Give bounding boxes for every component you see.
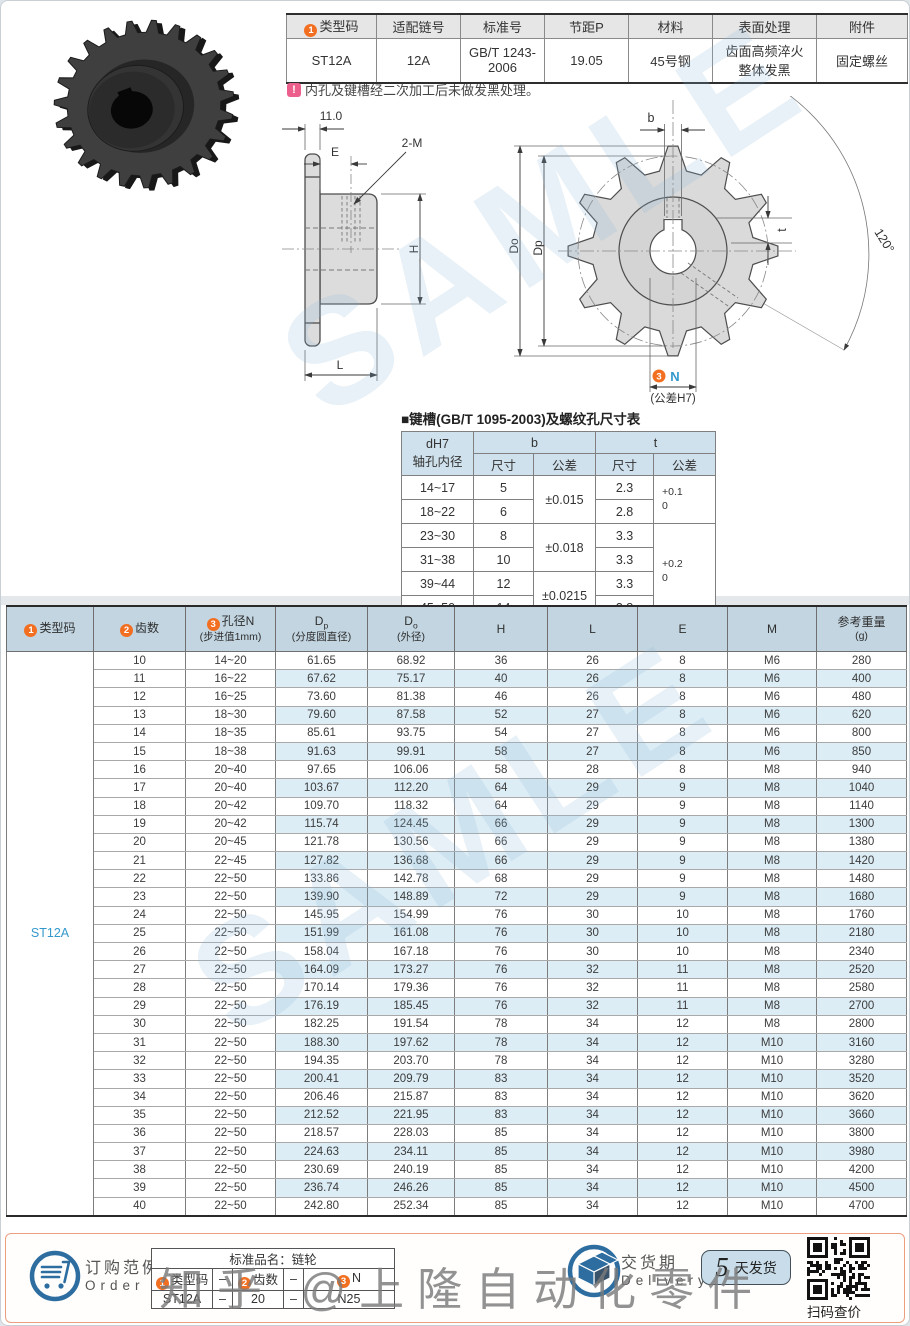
bore-range-cell: 22~50	[186, 906, 276, 924]
do-cell: 81.38	[368, 688, 455, 706]
teeth-cell: 31	[94, 1033, 186, 1051]
bore-range-cell: 22~50	[186, 1179, 276, 1197]
header-bore: 3孔径N(步进值1mm)	[186, 606, 276, 652]
bore-range-cell: 20~40	[186, 761, 276, 779]
do-cell: 130.56	[368, 833, 455, 851]
table-row: 3422~50206.46215.87833412M103620	[7, 1088, 907, 1106]
bore-range-cell: 22~50	[186, 1088, 276, 1106]
l-cell: 26	[548, 652, 638, 670]
table-row: 3922~50236.74246.26853412M104500	[7, 1179, 907, 1197]
do-cell: 99.91	[368, 742, 455, 760]
table-row: 3822~50230.69240.19853412M104200	[7, 1161, 907, 1179]
table-row: 3722~50224.63234.11853412M103980	[7, 1143, 907, 1161]
dp-cell: 67.62	[276, 670, 368, 688]
keyway-header-t: t	[596, 432, 716, 454]
teeth-cell: 15	[94, 742, 186, 760]
l-cell: 34	[548, 1124, 638, 1142]
weight-cell: 2340	[817, 943, 907, 961]
teeth-cell: 21	[94, 852, 186, 870]
m-cell: M6	[728, 670, 817, 688]
spec-header-chain: 适配链号	[377, 14, 461, 38]
bore-range-cell: 22~50	[186, 924, 276, 942]
spec-table-wrap: 1类型码 适配链号 标准号 节距P 材料 表面处理 附件 ST12A 12A G…	[286, 13, 908, 84]
teeth-cell: 25	[94, 924, 186, 942]
m-cell: M10	[728, 1179, 817, 1197]
dp-cell: 85.61	[276, 724, 368, 742]
weight-cell: 2520	[817, 961, 907, 979]
spec-value-type: ST12A	[287, 38, 377, 83]
spec-header-standard: 标准号	[461, 14, 545, 38]
h-cell: 76	[455, 924, 548, 942]
tooth-plate-section	[305, 154, 320, 346]
h-cell: 72	[455, 888, 548, 906]
l-cell: 32	[548, 979, 638, 997]
bore-range-cell: 22~50	[186, 1070, 276, 1088]
dp-cell: 121.78	[276, 833, 368, 851]
dp-cell: 109.70	[276, 797, 368, 815]
catalog-page: SAMLE SAMLE 1类型码 适配链号 标准号 节距P 材料 表面处理 附件	[0, 0, 910, 1326]
m-cell: M8	[728, 961, 817, 979]
badge-2-icon: 2	[120, 624, 133, 637]
dp-cell: 164.09	[276, 961, 368, 979]
l-cell: 29	[548, 779, 638, 797]
front-view-drawing: 120° Do Dp b	[506, 96, 906, 408]
weight-cell: 3620	[817, 1088, 907, 1106]
table-row: 1216~2573.6081.3846268M6480	[7, 688, 907, 706]
m-cell: M6	[728, 652, 817, 670]
header-l: L	[548, 606, 638, 652]
e-cell: 9	[638, 797, 728, 815]
dp-cell: 224.63	[276, 1143, 368, 1161]
l-cell: 34	[548, 1161, 638, 1179]
l-cell: 29	[548, 870, 638, 888]
do-cell: 136.68	[368, 852, 455, 870]
m-cell: M8	[728, 1015, 817, 1033]
e-cell: 12	[638, 1143, 728, 1161]
dim-e-label: E	[331, 145, 339, 159]
sprocket-product-photo	[16, 6, 266, 196]
l-cell: 34	[548, 1197, 638, 1216]
main-dimension-table: 1类型码 2齿数 3孔径N(步进值1mm) Dp(分度圆直径) Do(外径) H…	[6, 605, 907, 1217]
table-row: 2222~50133.86142.7868299M81480	[7, 870, 907, 888]
h-cell: 40	[455, 670, 548, 688]
e-cell: 11	[638, 997, 728, 1015]
h-cell: 76	[455, 997, 548, 1015]
table-row: 2020~45121.78130.5666299M81380	[7, 833, 907, 851]
e-cell: 8	[638, 688, 728, 706]
bore-range-cell: 14~20	[186, 652, 276, 670]
h-cell: 76	[455, 979, 548, 997]
teeth-cell: 28	[94, 979, 186, 997]
e-cell: 10	[638, 943, 728, 961]
keyway-subheader-size: 尺寸	[596, 454, 654, 476]
h-cell: 54	[455, 724, 548, 742]
table-row: 1518~3891.6399.9158278M6850	[7, 742, 907, 760]
table-row: 1820~42109.70118.3264299M81140	[7, 797, 907, 815]
teeth-cell: 37	[94, 1143, 186, 1161]
m-cell: M10	[728, 1124, 817, 1142]
e-cell: 12	[638, 1179, 728, 1197]
h-cell: 78	[455, 1052, 548, 1070]
dp-cell: 97.65	[276, 761, 368, 779]
l-cell: 30	[548, 924, 638, 942]
teeth-cell: 12	[94, 688, 186, 706]
teeth-cell: 10	[94, 652, 186, 670]
teeth-cell: 23	[94, 888, 186, 906]
h-cell: 85	[455, 1161, 548, 1179]
dim-n-tolerance-label: (公差H7)	[650, 391, 696, 405]
teeth-cell: 38	[94, 1161, 186, 1179]
l-cell: 32	[548, 961, 638, 979]
bore-range-cell: 18~30	[186, 706, 276, 724]
weight-cell: 4700	[817, 1197, 907, 1216]
l-cell: 34	[548, 1052, 638, 1070]
teeth-cell: 36	[94, 1124, 186, 1142]
ship-days-number: 5	[715, 1252, 729, 1283]
do-cell: 191.54	[368, 1015, 455, 1033]
h-cell: 64	[455, 797, 548, 815]
dp-cell: 79.60	[276, 706, 368, 724]
dp-cell: 200.41	[276, 1070, 368, 1088]
m-cell: M8	[728, 870, 817, 888]
spec-header-pitch: 节距P	[545, 14, 629, 38]
do-cell: 246.26	[368, 1179, 455, 1197]
e-cell: 8	[638, 706, 728, 724]
h-cell: 46	[455, 688, 548, 706]
dim-l-label: L	[337, 358, 344, 372]
table-row: 3222~50194.35203.70783412M103280	[7, 1052, 907, 1070]
e-cell: 9	[638, 852, 728, 870]
h-cell: 85	[455, 1197, 548, 1216]
table-row: 2522~50151.99161.08763010M82180	[7, 924, 907, 942]
dp-cell: 139.90	[276, 888, 368, 906]
m-cell: M10	[728, 1143, 817, 1161]
do-cell: 154.99	[368, 906, 455, 924]
spec-header-accessory: 附件	[817, 14, 908, 38]
teeth-cell: 29	[94, 997, 186, 1015]
dp-cell: 127.82	[276, 852, 368, 870]
weight-cell: 3160	[817, 1033, 907, 1051]
h-cell: 78	[455, 1015, 548, 1033]
badge-1-icon: 1	[156, 1277, 169, 1290]
table-row: 3522~50212.52221.95833412M103660	[7, 1106, 907, 1124]
m-cell: M8	[728, 833, 817, 851]
badge-1-icon: 1	[24, 624, 37, 637]
weight-cell: 3660	[817, 1106, 907, 1124]
l-cell: 34	[548, 1033, 638, 1051]
table-row: 1116~2267.6275.1740268M6400	[7, 670, 907, 688]
spec-header-material: 材料	[629, 14, 713, 38]
spec-header-type: 1类型码	[287, 14, 377, 38]
keyway-subheader-tol: 公差	[534, 454, 596, 476]
keyway-header-b: b	[474, 432, 596, 454]
h-cell: 83	[455, 1106, 548, 1124]
table-row: 4022~50242.80252.34853412M104700	[7, 1197, 907, 1216]
ship-days-text: 天发货	[735, 1258, 777, 1278]
bore-range-cell: 22~50	[186, 1124, 276, 1142]
do-cell: 197.62	[368, 1033, 455, 1051]
dp-cell: 218.57	[276, 1124, 368, 1142]
svg-text:3: 3	[656, 372, 661, 383]
h-cell: 76	[455, 906, 548, 924]
table-row: 1418~3585.6193.7554278M6800	[7, 724, 907, 742]
weight-cell: 3800	[817, 1124, 907, 1142]
m-cell: M10	[728, 1161, 817, 1179]
l-cell: 30	[548, 906, 638, 924]
dim-dp-label: Dp	[531, 240, 545, 256]
keyway-header-bore: dH7轴孔内径	[402, 432, 474, 476]
e-cell: 8	[638, 652, 728, 670]
h-cell: 76	[455, 961, 548, 979]
header-m: M	[728, 606, 817, 652]
header-h: H	[455, 606, 548, 652]
weight-cell: 480	[817, 688, 907, 706]
teeth-cell: 26	[94, 943, 186, 961]
e-cell: 12	[638, 1106, 728, 1124]
bore-range-cell: 22~50	[186, 1106, 276, 1124]
dp-cell: 194.35	[276, 1052, 368, 1070]
dp-cell: 170.14	[276, 979, 368, 997]
do-cell: 173.27	[368, 961, 455, 979]
teeth-cell: 14	[94, 724, 186, 742]
do-cell: 87.58	[368, 706, 455, 724]
e-cell: 8	[638, 742, 728, 760]
weight-cell: 2180	[817, 924, 907, 942]
bore-range-cell: 22~50	[186, 1197, 276, 1216]
spec-value-surface: 齿面高频淬火整体发黑	[713, 38, 817, 83]
thread-label: 2-M	[402, 136, 423, 150]
spec-value-chain: 12A	[377, 38, 461, 83]
m-cell: M10	[728, 1033, 817, 1051]
dim-do-label: Do	[507, 238, 521, 254]
weight-cell: 1420	[817, 852, 907, 870]
e-cell: 8	[638, 670, 728, 688]
dp-cell: 103.67	[276, 779, 368, 797]
do-cell: 75.17	[368, 670, 455, 688]
e-cell: 8	[638, 724, 728, 742]
dim-h-label: H	[407, 245, 421, 254]
teeth-cell: 16	[94, 761, 186, 779]
e-cell: 8	[638, 761, 728, 779]
m-cell: M8	[728, 906, 817, 924]
weight-cell: 1300	[817, 815, 907, 833]
badge-1-icon: 1	[304, 24, 317, 37]
m-cell: M6	[728, 742, 817, 760]
weight-cell: 2700	[817, 997, 907, 1015]
table-row: 2922~50176.19185.45763211M82700	[7, 997, 907, 1015]
dp-cell: 206.46	[276, 1088, 368, 1106]
bore-range-cell: 22~50	[186, 870, 276, 888]
l-cell: 29	[548, 888, 638, 906]
l-cell: 34	[548, 1106, 638, 1124]
teeth-cell: 18	[94, 797, 186, 815]
badge-2-icon: 2	[238, 1277, 251, 1290]
do-cell: 221.95	[368, 1106, 455, 1124]
bore-range-cell: 22~50	[186, 1015, 276, 1033]
table-row: 1920~42115.74124.4566299M81300	[7, 815, 907, 833]
teeth-cell: 30	[94, 1015, 186, 1033]
l-cell: 34	[548, 1015, 638, 1033]
l-cell: 27	[548, 706, 638, 724]
dp-cell: 133.86	[276, 870, 368, 888]
e-cell: 12	[638, 1070, 728, 1088]
table-row: 2822~50170.14179.36763211M82580	[7, 979, 907, 997]
do-cell: 148.89	[368, 888, 455, 906]
teeth-cell: 24	[94, 906, 186, 924]
note-text: 内孔及键槽经二次加工后未做发黑处理。	[305, 80, 539, 99]
m-cell: M6	[728, 688, 817, 706]
table-row: ST12A1014~2061.6568.9236268M6280	[7, 652, 907, 670]
weight-cell: 280	[817, 652, 907, 670]
dp-cell: 115.74	[276, 815, 368, 833]
weight-cell: 4200	[817, 1161, 907, 1179]
delivery-box-icon	[566, 1243, 622, 1299]
spec-value-accessory: 固定螺丝	[817, 38, 908, 83]
teeth-cell: 22	[94, 870, 186, 888]
do-cell: 209.79	[368, 1070, 455, 1088]
dp-cell: 91.63	[276, 742, 368, 760]
weight-cell: 850	[817, 742, 907, 760]
header-teeth: 2齿数	[94, 606, 186, 652]
bore-range-cell: 22~45	[186, 852, 276, 870]
bore-range-cell: 22~50	[186, 1052, 276, 1070]
e-cell: 9	[638, 888, 728, 906]
bore-range-cell: 22~50	[186, 1033, 276, 1051]
e-cell: 10	[638, 924, 728, 942]
table-row: 3622~50218.57228.03853412M103800	[7, 1124, 907, 1142]
h-cell: 64	[455, 779, 548, 797]
table-row: 1620~4097.65106.0658288M8940	[7, 761, 907, 779]
header-type-code: 1类型码	[7, 606, 94, 652]
h-cell: 68	[455, 870, 548, 888]
weight-cell: 4500	[817, 1179, 907, 1197]
keyway-table: dH7轴孔内径 b t 尺寸 公差 尺寸 公差 14~175 ±0.015 2.…	[401, 431, 716, 621]
weight-cell: 3280	[817, 1052, 907, 1070]
dim-t-label: t	[775, 228, 789, 232]
m-cell: M8	[728, 943, 817, 961]
bore-range-cell: 22~50	[186, 1161, 276, 1179]
l-cell: 34	[548, 1143, 638, 1161]
m-cell: M8	[728, 815, 817, 833]
e-cell: 12	[638, 1052, 728, 1070]
e-cell: 9	[638, 833, 728, 851]
h-cell: 66	[455, 852, 548, 870]
keyway-subheader-tol: 公差	[654, 454, 716, 476]
teeth-cell: 40	[94, 1197, 186, 1216]
do-cell: 252.34	[368, 1197, 455, 1216]
spec-table: 1类型码 适配链号 标准号 节距P 材料 表面处理 附件 ST12A 12A G…	[286, 13, 908, 84]
dp-cell: 176.19	[276, 997, 368, 1015]
e-cell: 12	[638, 1197, 728, 1216]
table-row: 2622~50158.04167.18763010M82340	[7, 943, 907, 961]
teeth-cell: 13	[94, 706, 186, 724]
dp-cell: 188.30	[276, 1033, 368, 1051]
order-example-table: 标准品名：链轮 1类型码 – 2齿数 – 3N ST12A – 20 – N25	[151, 1248, 395, 1309]
order-table-title: 标准品名：链轮	[152, 1249, 395, 1269]
bore-range-cell: 22~50	[186, 961, 276, 979]
badge-3-icon: 3	[337, 1275, 350, 1288]
do-cell: 167.18	[368, 943, 455, 961]
e-cell: 11	[638, 979, 728, 997]
h-cell: 58	[455, 742, 548, 760]
header-weight: 参考重量(g)	[817, 606, 907, 652]
table-row: 2122~45127.82136.6866299M81420	[7, 852, 907, 870]
h-cell: 66	[455, 833, 548, 851]
keyway-subheader-size: 尺寸	[474, 454, 534, 476]
weight-cell: 620	[817, 706, 907, 724]
bore-range-cell: 18~35	[186, 724, 276, 742]
table-row: 2322~50139.90148.8972299M81680	[7, 888, 907, 906]
spec-header-surface: 表面处理	[713, 14, 817, 38]
m-cell: M8	[728, 779, 817, 797]
e-cell: 12	[638, 1124, 728, 1142]
bore-range-cell: 22~50	[186, 997, 276, 1015]
e-cell: 11	[638, 961, 728, 979]
bore-range-cell: 16~25	[186, 688, 276, 706]
l-cell: 26	[548, 670, 638, 688]
side-view-drawing: 11.0 E 2-M H L	[234, 98, 464, 403]
table-row: 3122~50188.30197.62783412M103160	[7, 1033, 907, 1051]
teeth-cell: 39	[94, 1179, 186, 1197]
dp-cell: 182.25	[276, 1015, 368, 1033]
dim-b-label: b	[648, 111, 655, 125]
weight-cell: 2580	[817, 979, 907, 997]
qr-caption: 扫码查价	[807, 1301, 861, 1321]
h-cell: 83	[455, 1070, 548, 1088]
m-cell: M8	[728, 761, 817, 779]
e-cell: 9	[638, 870, 728, 888]
m-cell: M8	[728, 979, 817, 997]
delivery-label: 交货期 Delivery	[621, 1254, 710, 1289]
h-cell: 85	[455, 1124, 548, 1142]
order-table-value-row: ST12A – 20 – N25	[152, 1290, 395, 1308]
cart-icon	[28, 1249, 82, 1303]
exclamation-icon: !	[287, 83, 301, 97]
bore-range-cell: 22~50	[186, 979, 276, 997]
do-cell: 142.78	[368, 870, 455, 888]
teeth-cell: 27	[94, 961, 186, 979]
do-cell: 112.20	[368, 779, 455, 797]
e-cell: 12	[638, 1015, 728, 1033]
h-cell: 78	[455, 1033, 548, 1051]
keyway-table-section: ■键槽(GB/T 1095-2003)及螺纹孔尺寸表 dH7轴孔内径 b t 尺…	[401, 408, 719, 621]
spec-value-standard: GB/T 1243-2006	[461, 38, 545, 83]
do-cell: 215.87	[368, 1088, 455, 1106]
bore-range-cell: 20~45	[186, 833, 276, 851]
m-cell: M8	[728, 797, 817, 815]
e-cell: 10	[638, 906, 728, 924]
weight-cell: 800	[817, 724, 907, 742]
do-cell: 179.36	[368, 979, 455, 997]
m-cell: M10	[728, 1070, 817, 1088]
qr-code	[807, 1237, 870, 1300]
table-row: 3322~50200.41209.79833412M103520	[7, 1070, 907, 1088]
weight-cell: 1680	[817, 888, 907, 906]
m-cell: M8	[728, 888, 817, 906]
type-code-cell: ST12A	[7, 652, 94, 1216]
dp-cell: 236.74	[276, 1179, 368, 1197]
l-cell: 30	[548, 943, 638, 961]
dp-cell: 158.04	[276, 943, 368, 961]
l-cell: 32	[548, 997, 638, 1015]
l-cell: 29	[548, 833, 638, 851]
weight-cell: 3520	[817, 1070, 907, 1088]
e-cell: 12	[638, 1033, 728, 1051]
main-table-header-row: 1类型码 2齿数 3孔径N(步进值1mm) Dp(分度圆直径) Do(外径) H…	[7, 606, 907, 652]
spec-value-pitch: 19.05	[545, 38, 629, 83]
bore-range-cell: 20~42	[186, 797, 276, 815]
h-cell: 52	[455, 706, 548, 724]
